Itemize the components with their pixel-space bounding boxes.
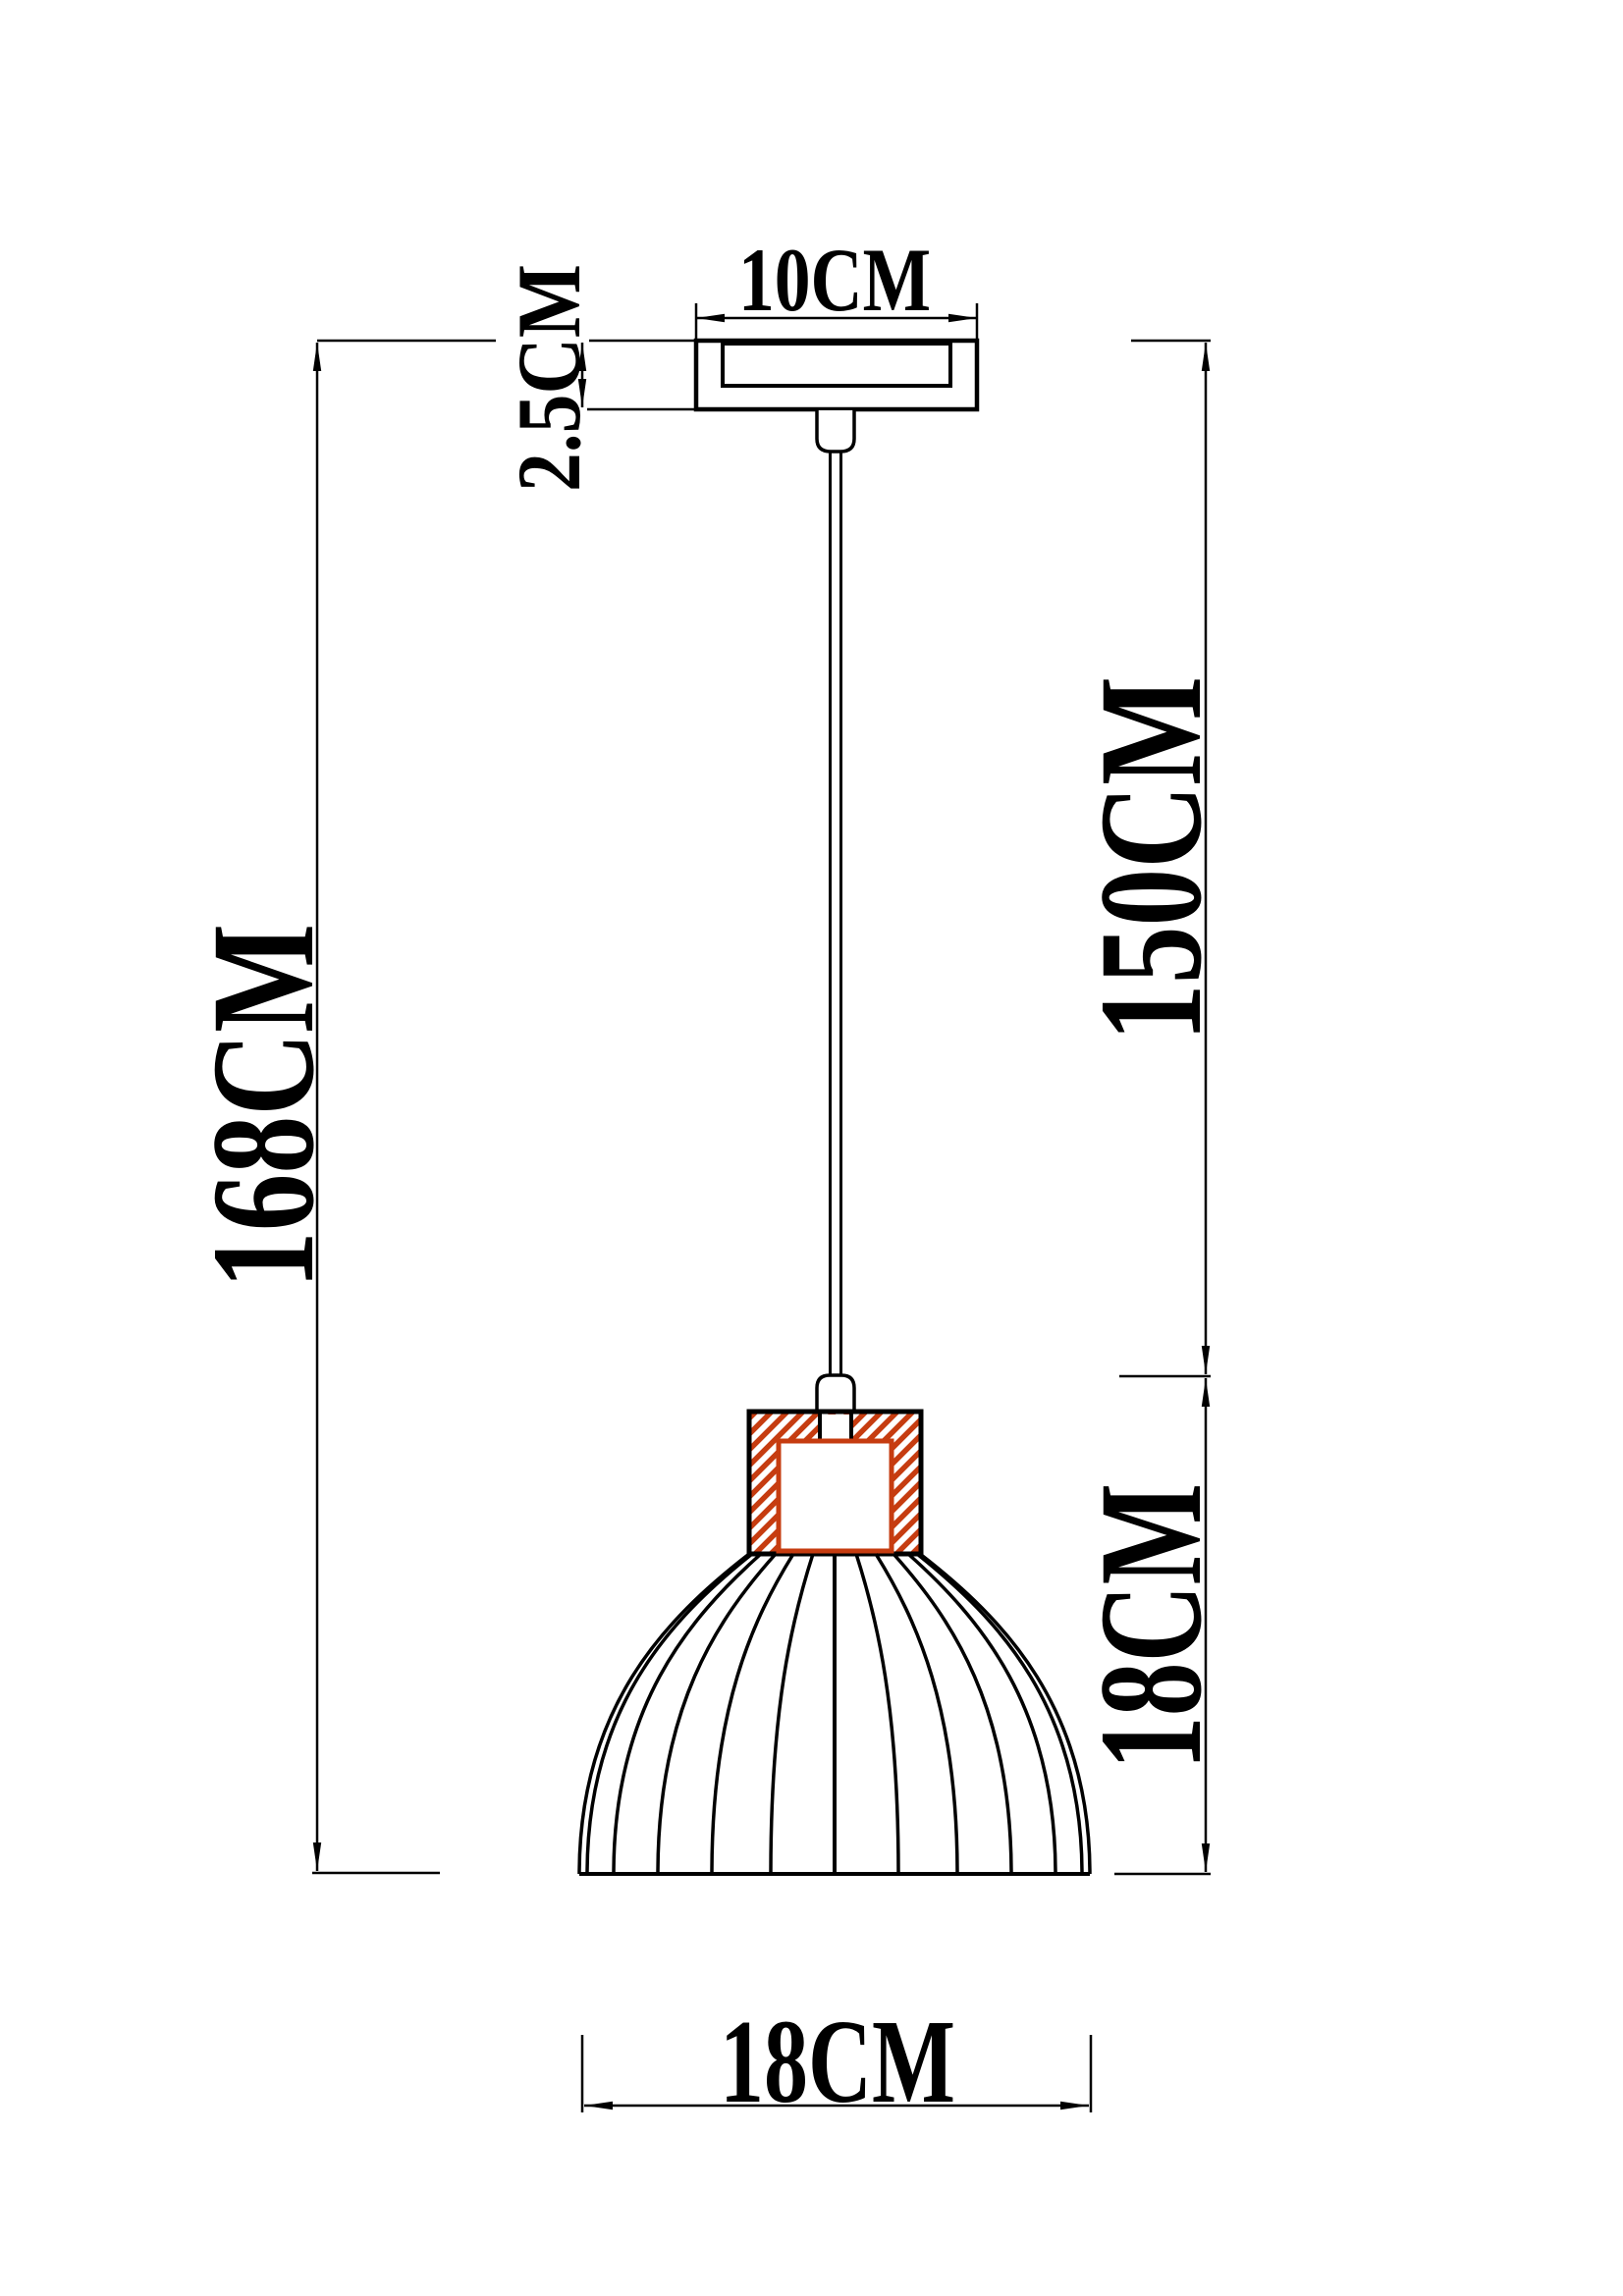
drawing-sheet: 10CM 2.5CM 168CM 150CM 18CM 18CM — [0, 0, 1623, 2296]
shade-rib — [893, 1554, 1011, 1874]
canopy-cord-stem — [817, 410, 854, 452]
shade-rib — [658, 1554, 776, 1874]
shade-outer-profile-left — [579, 1554, 749, 1874]
label-canopy-width: 10CM — [738, 230, 931, 330]
shade-rib — [771, 1554, 813, 1874]
suspension-cord — [831, 452, 841, 1376]
label-overall-height: 168CM — [182, 924, 345, 1289]
shade-outer-profile-right — [920, 1554, 1090, 1874]
technical-drawing: 10CM 2.5CM 168CM 150CM 18CM 18CM — [0, 0, 1623, 2296]
lamp-shade — [579, 1554, 1090, 1874]
canopy-inner-plate — [723, 344, 950, 386]
dimension-canopy-height — [582, 341, 694, 409]
shade-rib — [712, 1554, 793, 1874]
label-shade-diameter: 18CM — [720, 1996, 955, 2128]
socket-cavity — [779, 1441, 892, 1551]
label-drop-height: 150CM — [1069, 676, 1232, 1041]
label-shade-height: 18CM — [1069, 1483, 1232, 1770]
cord-grip — [817, 1375, 854, 1412]
shade-rib — [856, 1554, 898, 1874]
ceiling-canopy — [696, 341, 977, 452]
socket-block — [749, 1412, 921, 1554]
shade-rib — [876, 1554, 957, 1874]
label-canopy-height: 2.5CM — [499, 264, 599, 492]
